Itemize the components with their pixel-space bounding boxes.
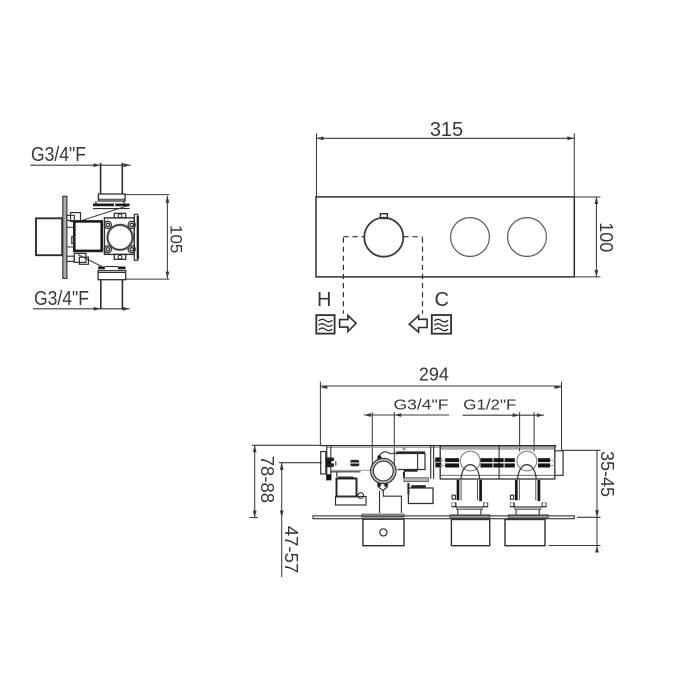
- svg-text:78-88: 78-88: [257, 456, 278, 503]
- svg-text:C: C: [435, 289, 449, 311]
- svg-text:H: H: [317, 289, 331, 311]
- svg-text:G3/4"F: G3/4"F: [394, 398, 449, 414]
- svg-text:105: 105: [167, 225, 186, 253]
- svg-text:315: 315: [430, 119, 463, 141]
- svg-text:G3/4"F: G3/4"F: [34, 288, 89, 310]
- svg-text:294: 294: [419, 364, 449, 384]
- svg-text:47-57: 47-57: [281, 526, 302, 573]
- svg-text:G3/4"F: G3/4"F: [31, 144, 86, 166]
- svg-text:G1/2"F: G1/2"F: [463, 398, 516, 414]
- svg-text:35-45: 35-45: [597, 451, 617, 497]
- svg-text:100: 100: [596, 222, 616, 252]
